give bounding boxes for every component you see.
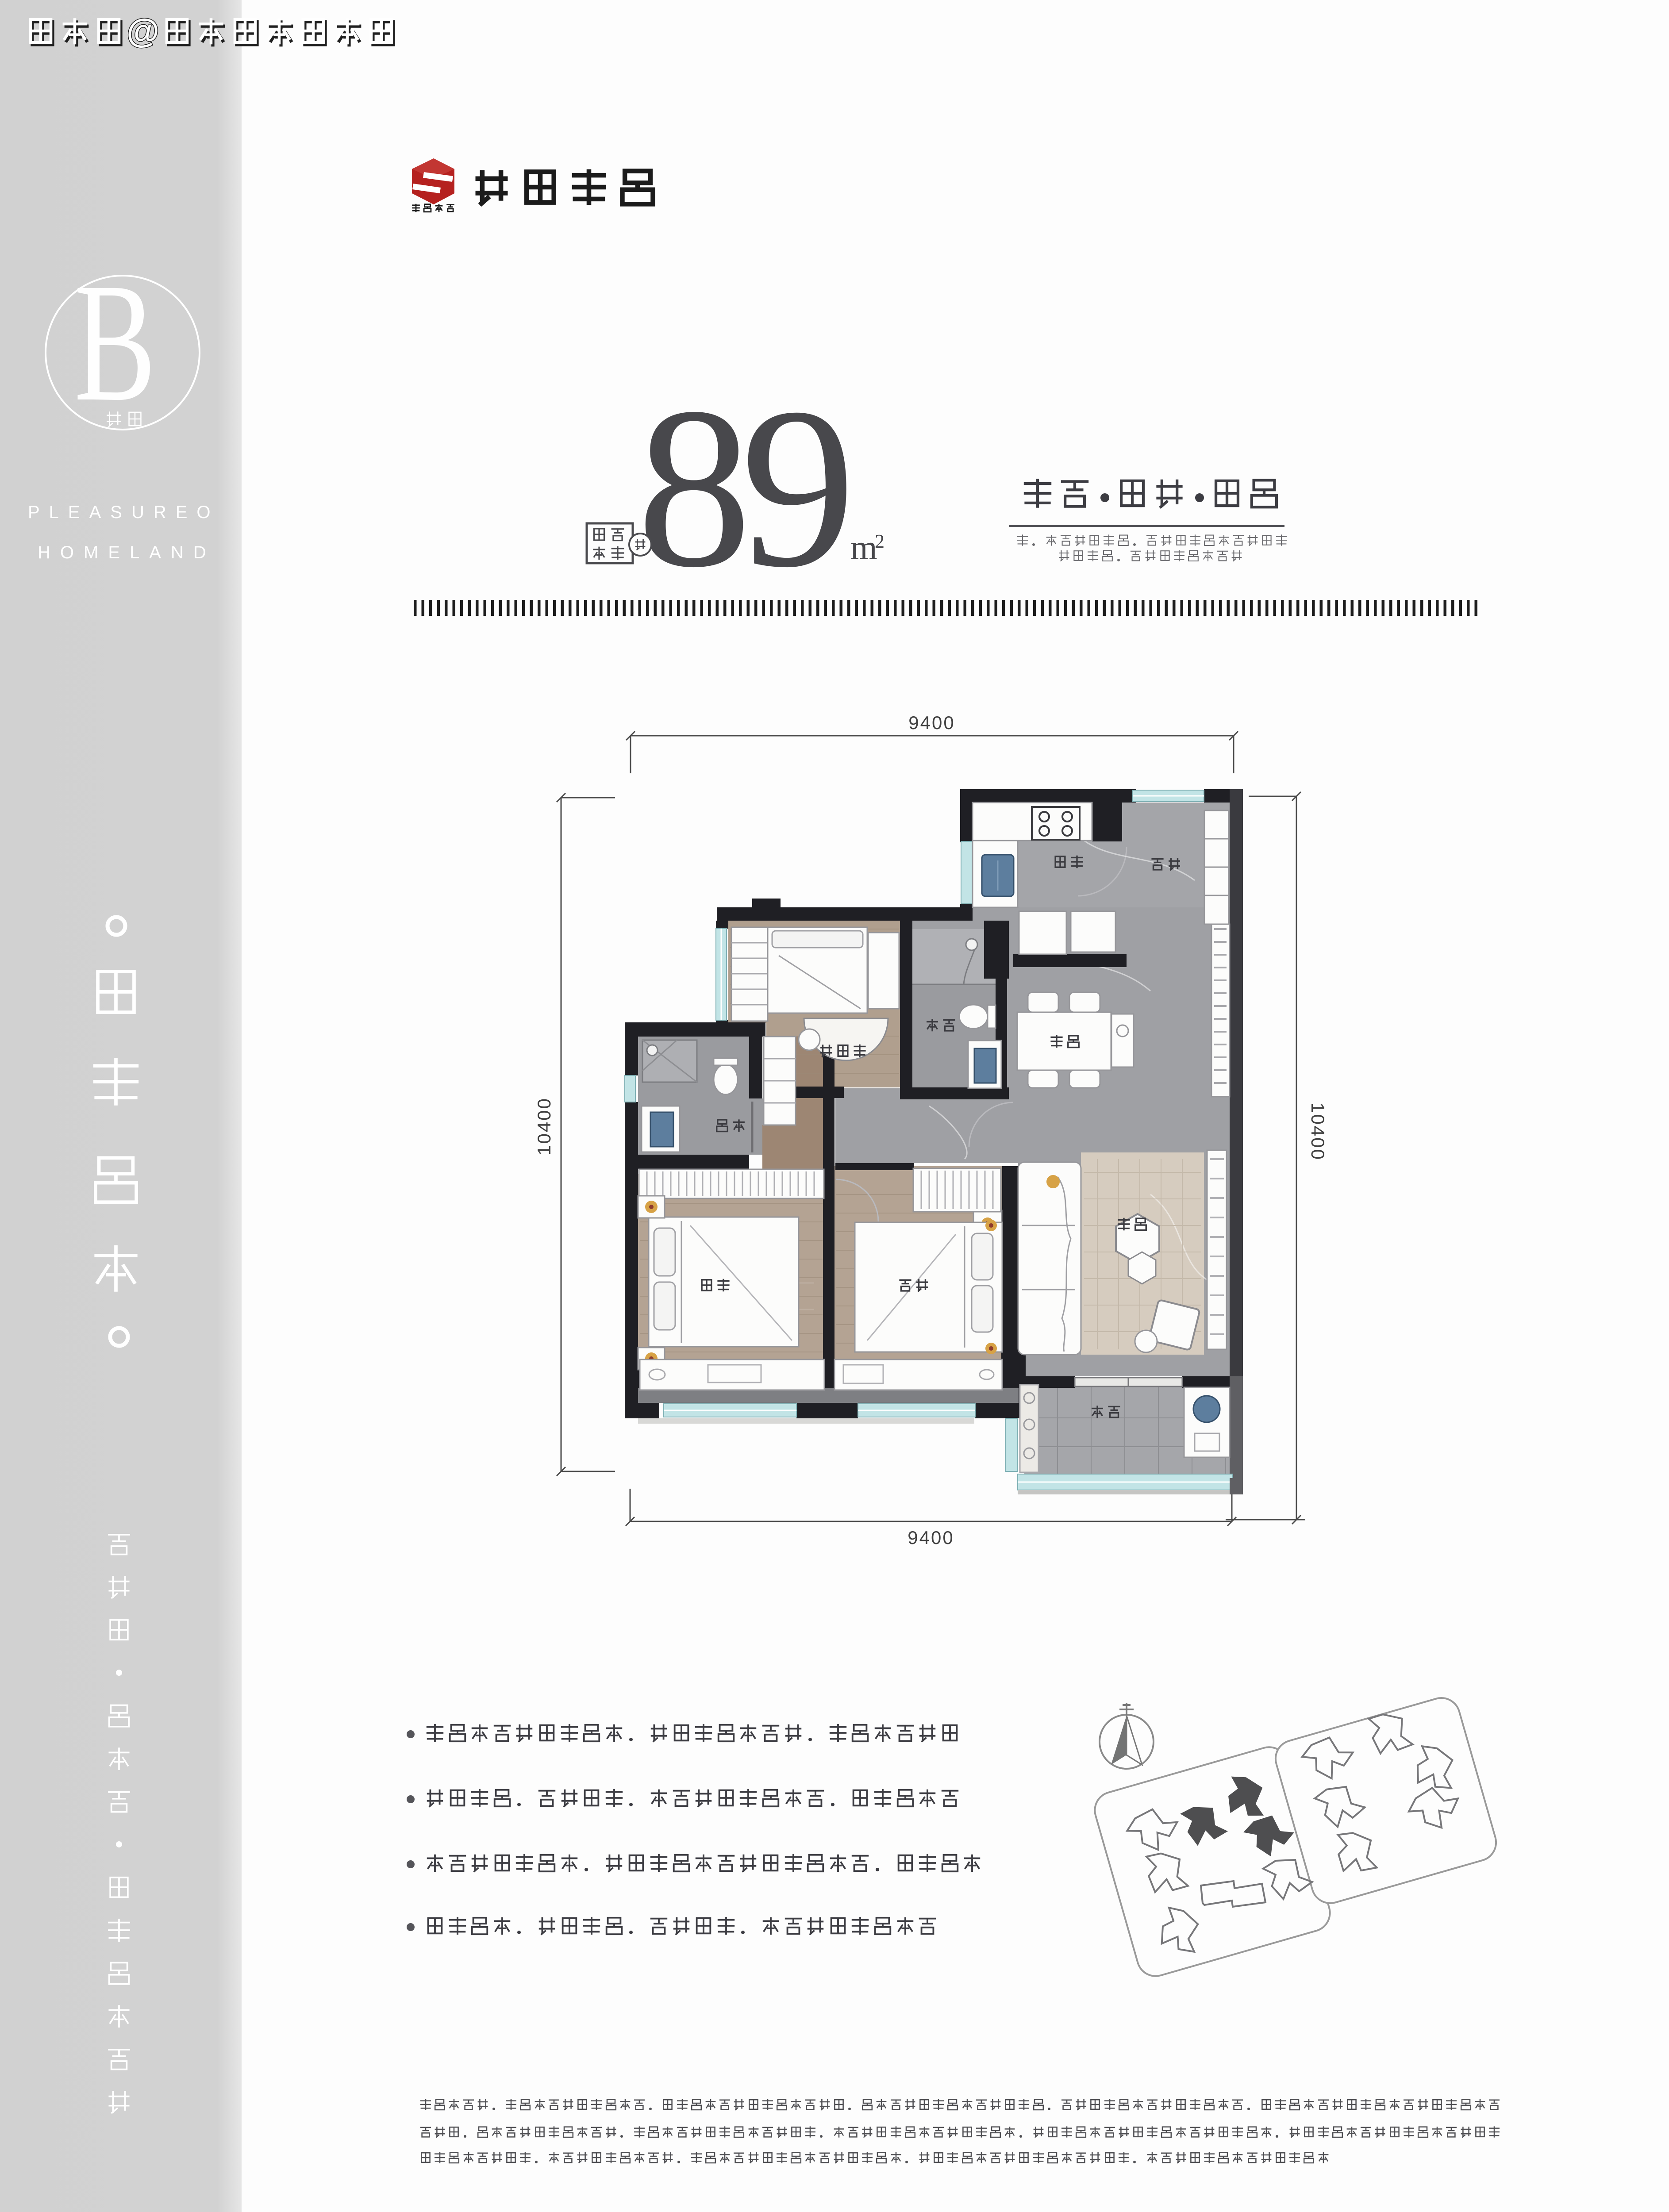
svg-text:PLEASUREO: PLEASUREO xyxy=(28,503,220,522)
svg-text:@: @ xyxy=(1363,2209,1396,2212)
svg-text:89: 89 xyxy=(637,361,849,615)
svg-text:m: m xyxy=(850,528,877,567)
svg-text:9400: 9400 xyxy=(908,1527,954,1548)
svg-text:HOMELAND: HOMELAND xyxy=(38,543,216,562)
svg-text:B: B xyxy=(74,248,156,437)
svg-text:10400: 10400 xyxy=(534,1097,554,1156)
svg-text:2: 2 xyxy=(875,530,884,552)
svg-text:10400: 10400 xyxy=(1308,1102,1328,1161)
svg-text:9400: 9400 xyxy=(908,712,955,733)
svg-text:@: @ xyxy=(127,12,159,50)
